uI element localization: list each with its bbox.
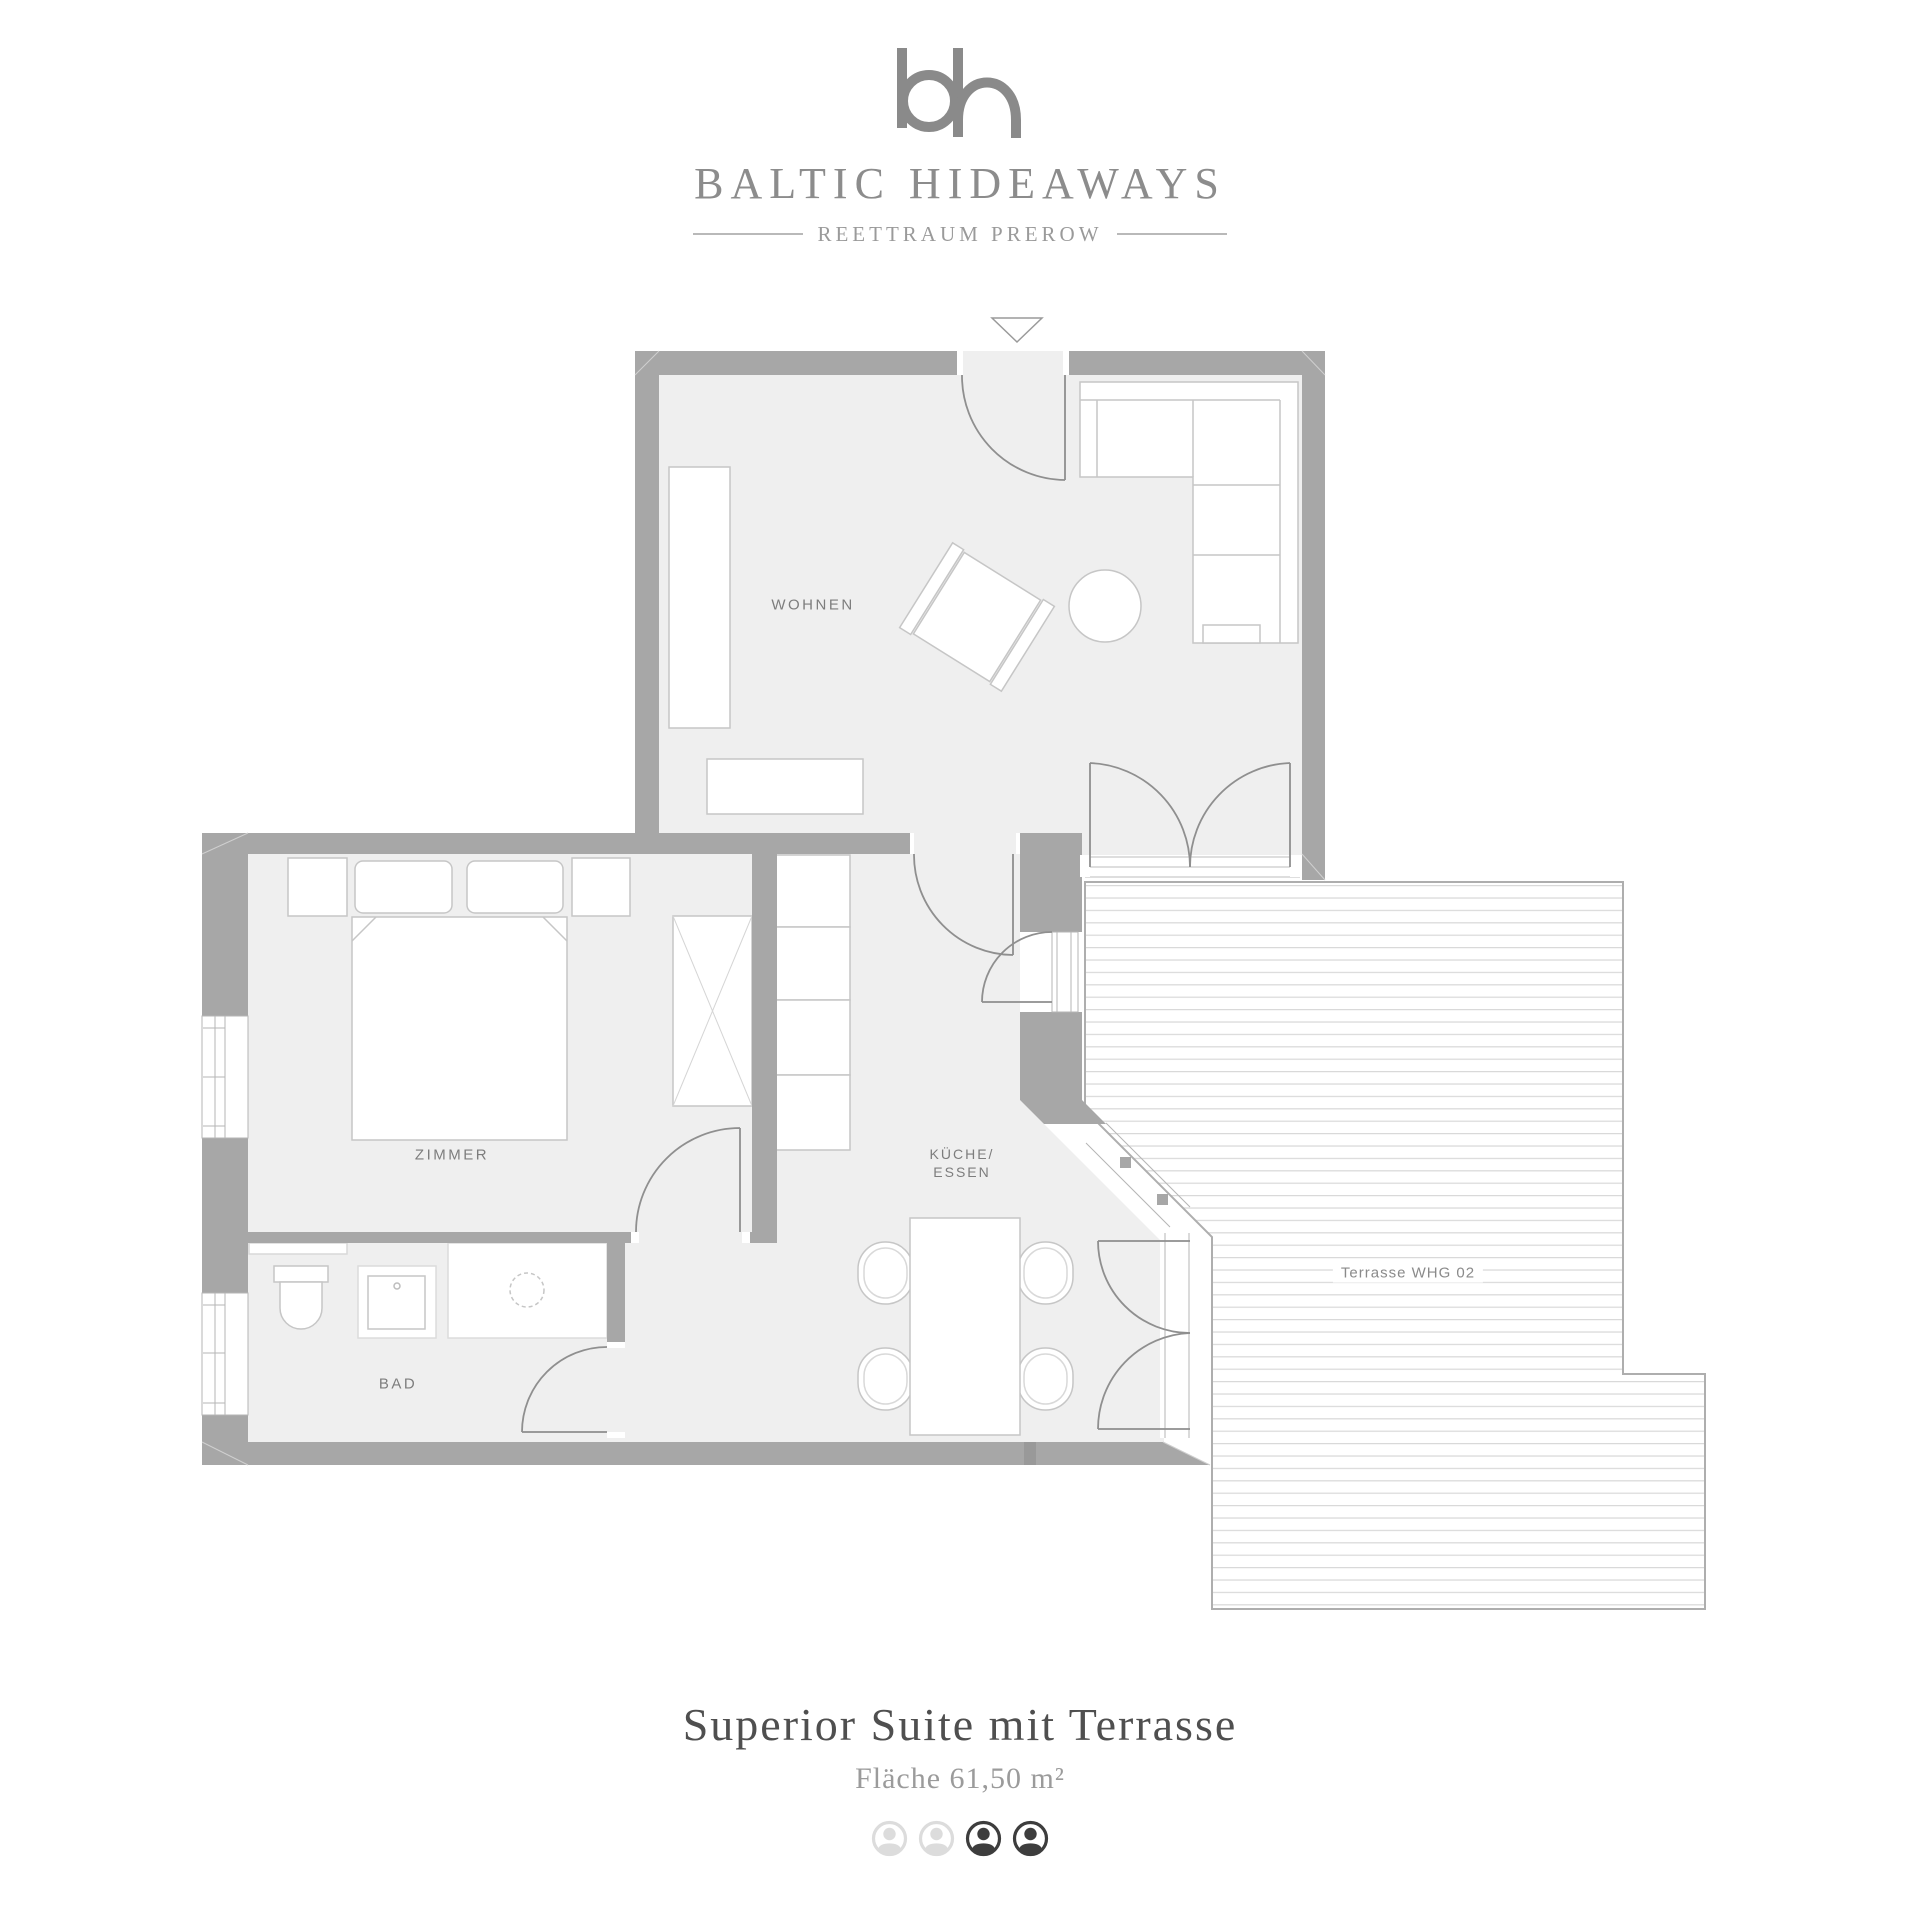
room-label-kueche-line1: KÜCHE/ bbox=[930, 1145, 995, 1163]
tv-lowboard bbox=[707, 759, 863, 814]
toilet bbox=[280, 1282, 322, 1329]
room-label-wohnen: WOHNEN bbox=[771, 597, 854, 614]
terrace-threshold bbox=[1085, 857, 1300, 877]
brand-tagline: REETTRAUM PREROW bbox=[817, 222, 1102, 247]
person-icon bbox=[965, 1820, 1002, 1857]
person-icon bbox=[871, 1820, 908, 1857]
tagline-rule-left bbox=[693, 233, 803, 235]
room-label-kueche: KÜCHE/ ESSEN bbox=[930, 1145, 995, 1181]
suite-area: Fläche 61,50 m² bbox=[0, 1762, 1920, 1796]
brand-name: BALTIC HIDEAWAYS bbox=[0, 158, 1920, 209]
sideboard bbox=[669, 467, 730, 728]
wardrobe bbox=[673, 916, 752, 1106]
brand-tagline-row: REETTRAUM PREROW bbox=[0, 221, 1920, 247]
room-label-zimmer: ZIMMER bbox=[415, 1147, 489, 1164]
floorplan-page: BALTIC HIDEAWAYS REETTRAUM PREROW WOHNEN… bbox=[0, 0, 1920, 1920]
suite-title: Superior Suite mit Terrasse bbox=[0, 1698, 1920, 1751]
entrance-arrow-icon bbox=[992, 318, 1042, 342]
tagline-rule-right bbox=[1117, 233, 1227, 235]
side-table-round bbox=[1069, 570, 1141, 642]
room-label-bad: BAD bbox=[379, 1376, 417, 1393]
floorplan-drawing bbox=[0, 0, 1920, 1920]
room-label-kueche-line2: ESSEN bbox=[930, 1163, 995, 1181]
person-icon bbox=[918, 1820, 955, 1857]
brand-monogram-icon bbox=[893, 42, 1027, 144]
occupancy-indicator bbox=[0, 1820, 1920, 1857]
kitchen-cabinets bbox=[775, 855, 850, 1150]
room-label-terrasse: Terrasse WHG 02 bbox=[1333, 1264, 1483, 1283]
person-icon bbox=[1012, 1820, 1049, 1857]
